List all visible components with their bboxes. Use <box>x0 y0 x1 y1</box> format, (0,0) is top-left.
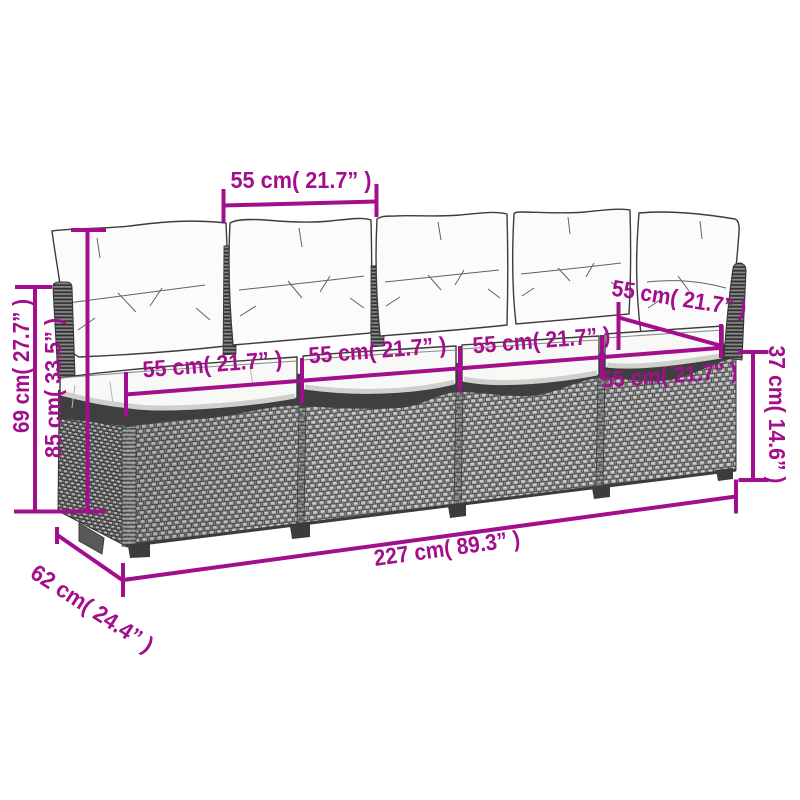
svg-text:62 cm( 24.4” ): 62 cm( 24.4” ) <box>26 559 158 658</box>
svg-text:85 cm( 33.5” ): 85 cm( 33.5” ) <box>40 318 66 458</box>
svg-text:69 cm( 27.7” ): 69 cm( 27.7” ) <box>8 299 34 433</box>
svg-text:37 cm( 14.6” ): 37 cm( 14.6” ) <box>764 346 790 484</box>
svg-text:227 cm( 89.3” ): 227 cm( 89.3” ) <box>372 525 521 571</box>
svg-text:55 cm( 21.7” ): 55 cm( 21.7” ) <box>231 167 372 193</box>
